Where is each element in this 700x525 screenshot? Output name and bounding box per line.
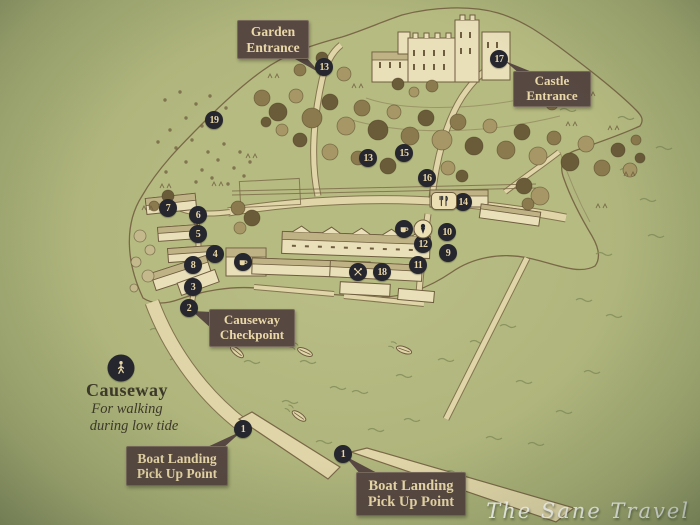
map-marker-7: 7 (159, 199, 177, 217)
map-marker-4: 4 (206, 245, 224, 263)
walking-person-icon (108, 355, 135, 382)
fork-and-knife-icon (431, 192, 457, 210)
map-marker-16: 16 (418, 169, 436, 187)
map-marker-1: 1 (234, 420, 252, 438)
map-marker-9: 9 (439, 244, 457, 262)
coffee-cup-icon (234, 253, 252, 271)
map-marker-5: 5 (189, 225, 207, 243)
map-marker-6: 6 (189, 206, 207, 224)
coffee-cup-icon (395, 220, 413, 238)
map-marker-17: 17 (490, 50, 508, 68)
map-marker-15: 15 (395, 144, 413, 162)
boat-landing-bottom-label: Boat Landing Pick Up Point (356, 472, 466, 516)
map-marker-19: 19 (205, 111, 223, 129)
map-marker-2: 2 (180, 299, 198, 317)
causeway-subtitle-line2: during low tide (49, 418, 219, 435)
causeway-note: Causeway For walking during low tide (42, 380, 212, 434)
watermark: The Sane Travel (486, 499, 690, 523)
causeway-subtitle-line1: For walking (42, 401, 212, 418)
garden-entrance-label: Garden Entrance (237, 20, 309, 59)
ice-cream-cone-icon (414, 220, 433, 239)
map-marker-11: 11 (409, 256, 427, 274)
map-marker-18: 18 (373, 263, 391, 281)
causeway-checkpoint-label: Causeway Checkpoint (209, 309, 295, 347)
crossed-oars-icon (349, 263, 367, 281)
boat-landing-left-label: Boat Landing Pick Up Point (126, 446, 228, 486)
map-marker-13: 13 (315, 58, 333, 76)
map-marker-8: 8 (184, 256, 202, 274)
island-visitor-map: Garden Entrance Castle Entrance Causeway… (0, 0, 700, 525)
castle-entrance-label: Castle Entrance (513, 71, 591, 107)
map-marker-13: 13 (359, 149, 377, 167)
label-tails (0, 0, 700, 525)
map-marker-1: 1 (334, 445, 352, 463)
causeway-title: Causeway (42, 380, 212, 401)
map-marker-10: 10 (438, 223, 456, 241)
map-marker-3: 3 (184, 278, 202, 296)
